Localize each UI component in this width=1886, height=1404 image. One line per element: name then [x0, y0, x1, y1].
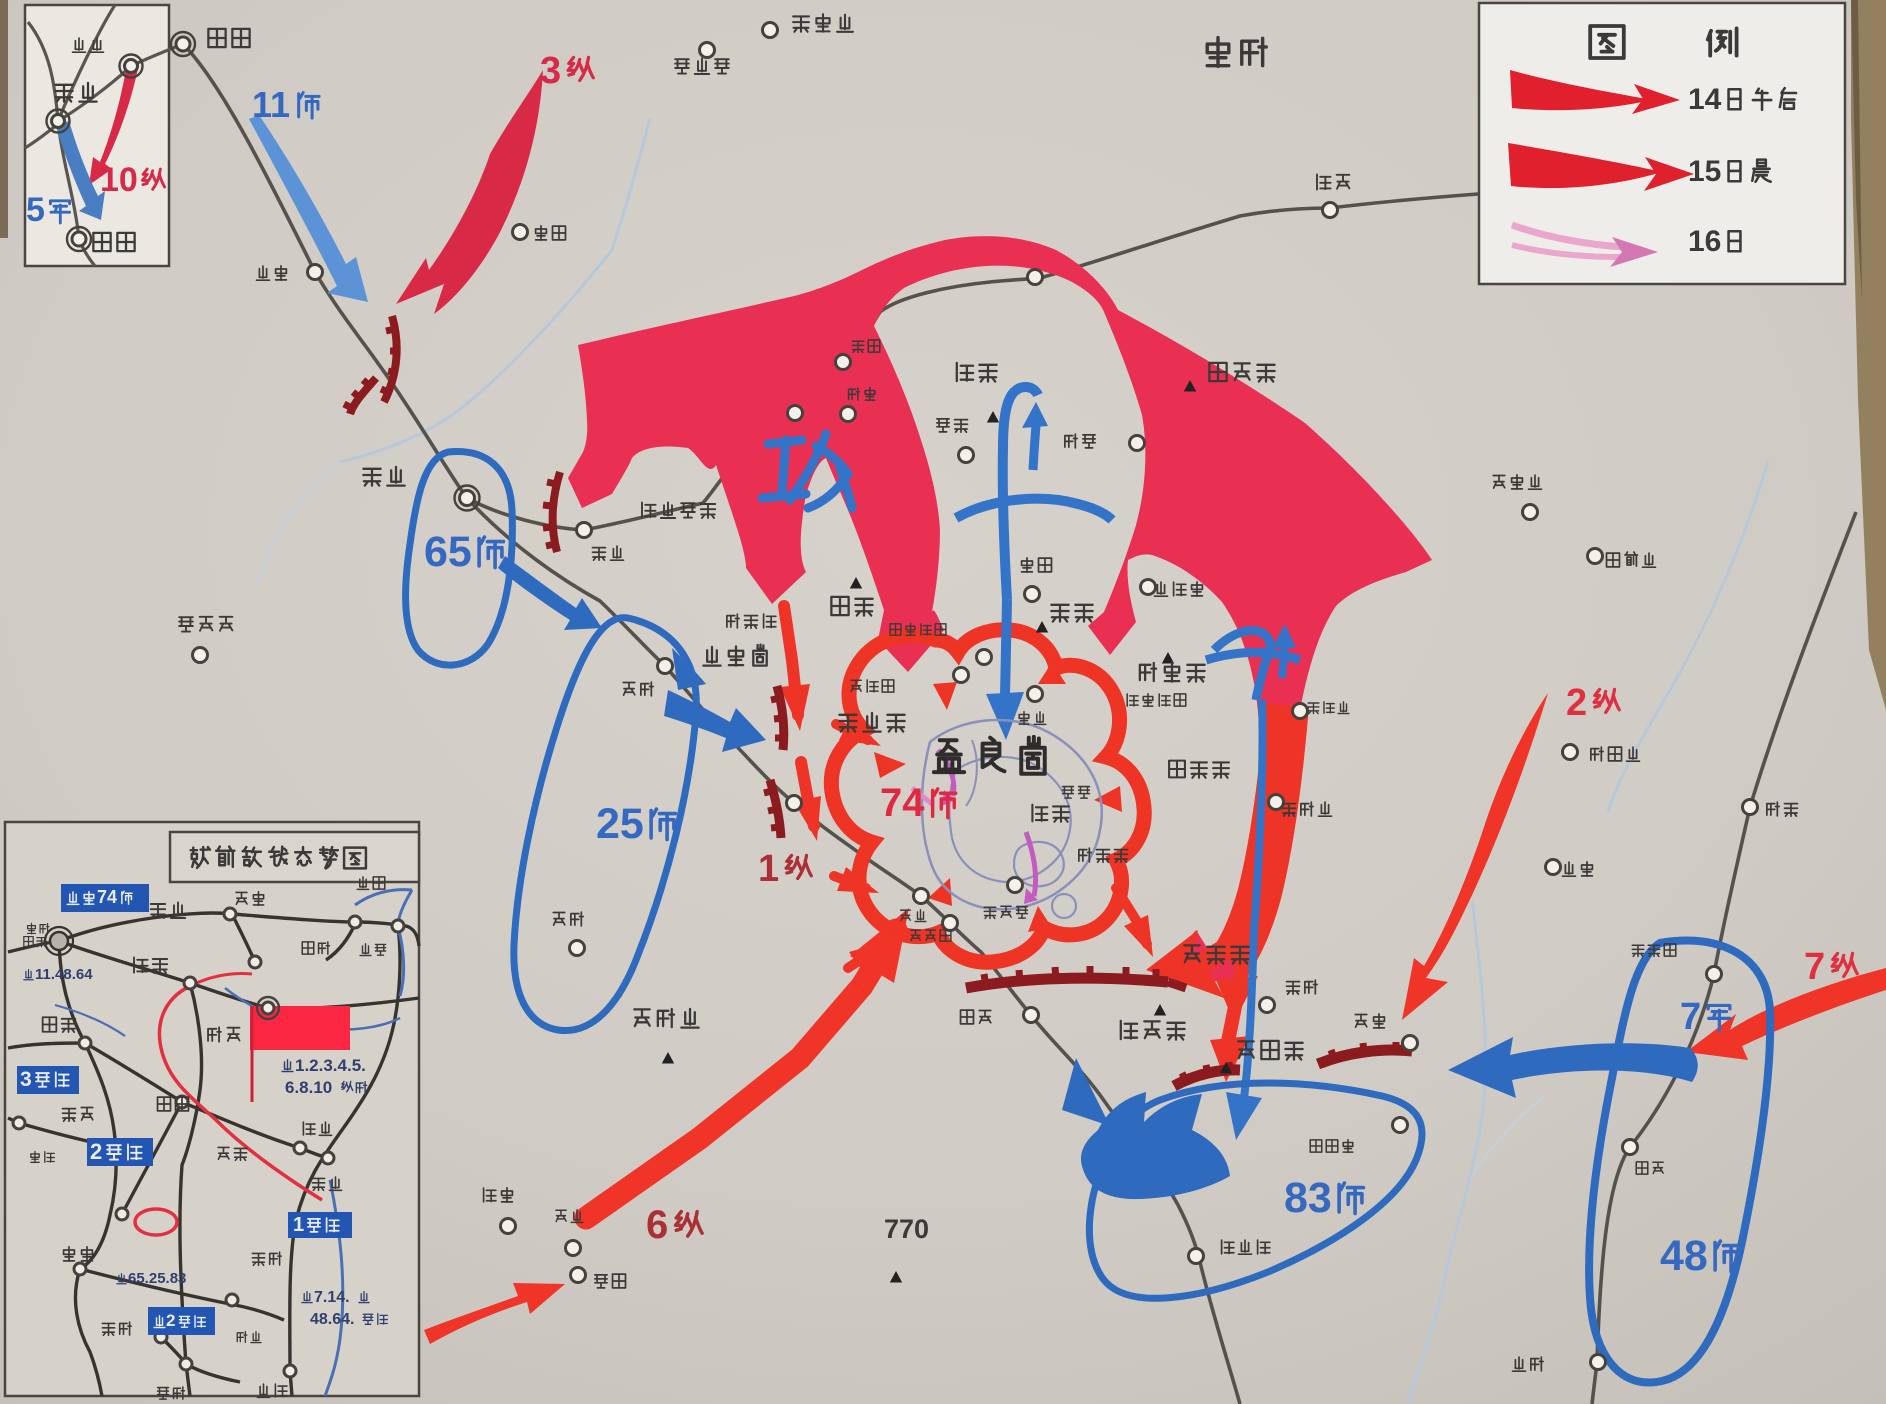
- svg-text:7.14.: 7.14.: [314, 1289, 350, 1306]
- svg-text:14: 14: [1688, 83, 1722, 116]
- svg-text:3: 3: [20, 1068, 32, 1091]
- svg-text:770: 770: [884, 1214, 929, 1244]
- svg-text:16: 16: [1688, 225, 1721, 258]
- svg-text:7: 7: [1804, 946, 1825, 988]
- svg-text:1: 1: [758, 848, 779, 890]
- svg-text:6.8.10: 6.8.10: [285, 1078, 332, 1097]
- svg-text:6: 6: [646, 1203, 668, 1247]
- svg-text:5: 5: [26, 191, 45, 229]
- svg-text:65.25.83: 65.25.83: [128, 1270, 186, 1287]
- svg-text:11.48.64: 11.48.64: [35, 966, 93, 983]
- svg-text:2: 2: [1566, 682, 1587, 724]
- svg-text:11: 11: [252, 84, 290, 125]
- svg-text:65: 65: [424, 528, 472, 576]
- svg-text:25: 25: [596, 800, 644, 848]
- svg-text:2: 2: [166, 1311, 175, 1330]
- svg-text:48: 48: [1660, 1232, 1708, 1280]
- svg-text:83: 83: [1284, 1174, 1332, 1222]
- svg-text:74: 74: [880, 781, 925, 825]
- svg-text:15: 15: [1688, 155, 1721, 188]
- svg-text:10: 10: [100, 161, 138, 199]
- svg-text:1: 1: [293, 1214, 304, 1236]
- svg-text:1.2.3.4.5.: 1.2.3.4.5.: [295, 1056, 366, 1075]
- svg-text:2: 2: [90, 1139, 102, 1164]
- svg-text:3: 3: [540, 50, 561, 92]
- svg-text:48.64.: 48.64.: [310, 1311, 354, 1328]
- svg-text:7: 7: [1680, 996, 1701, 1038]
- svg-text:74: 74: [97, 887, 117, 907]
